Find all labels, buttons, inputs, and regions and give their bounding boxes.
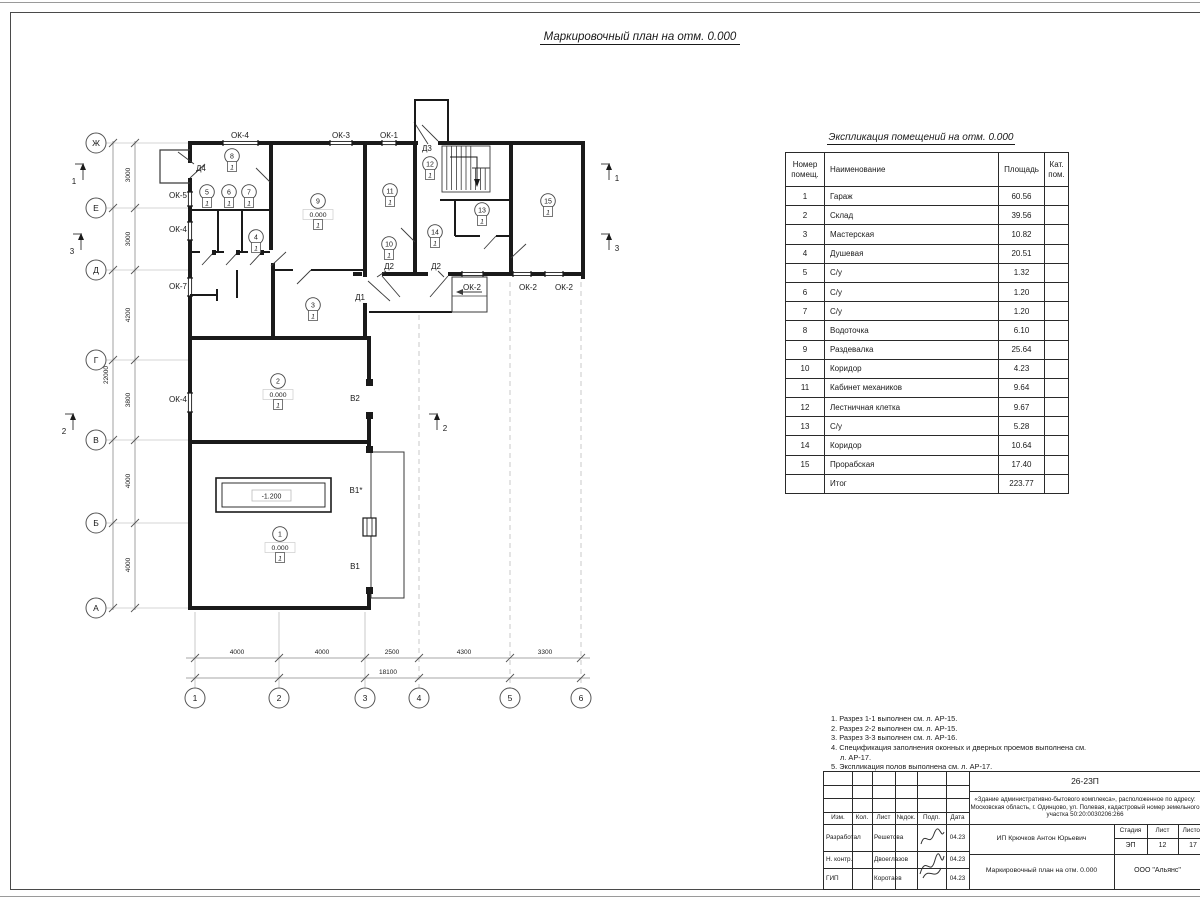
staff-role: ГИП	[824, 868, 874, 889]
opening-label: Д1	[355, 293, 365, 302]
plan-group: 3000300042003800400040002200040004000250…	[62, 100, 620, 708]
room-name: Кабинет механиков	[825, 378, 999, 397]
room-marker-13: 131	[475, 203, 490, 226]
axis-letter: Б	[93, 518, 99, 528]
room-floor-type: 1	[480, 219, 484, 226]
room-area: 1.20	[999, 302, 1045, 321]
room-number: 3	[786, 225, 825, 244]
room-floor-type: 1	[388, 200, 392, 207]
title-block: Изм.Кол.Лист№док.Подп.ДатаРазработалРеше…	[823, 771, 1200, 890]
room-marker-6: 61	[222, 185, 237, 208]
axis-number: 1	[193, 693, 198, 703]
opening-label: ОК-7	[169, 282, 188, 291]
room-marker-2: 20.0001	[263, 374, 293, 410]
table-row: 2Склад39.56	[786, 206, 1069, 225]
table-row: 15Прорабская17.40	[786, 455, 1069, 474]
room-number: 13	[786, 417, 825, 436]
room-number: 9	[786, 340, 825, 359]
room-marker-3: 31	[306, 298, 321, 321]
dim-left: 3800	[125, 392, 132, 407]
opening-label: ОК-1	[380, 131, 399, 140]
dim-bottom: 4300	[457, 649, 472, 656]
plan-geometry	[438, 271, 444, 277]
room-marker-14: 141	[428, 225, 443, 248]
room-category	[1045, 340, 1069, 359]
room-number: 7	[786, 302, 825, 321]
axis-letter: Г	[94, 355, 99, 365]
table-row: 12Лестничная клетка9.67	[786, 398, 1069, 417]
dim-bottom: 2500	[385, 649, 400, 656]
room-number: 8	[230, 154, 234, 161]
staff-name: Двоеглазов	[872, 851, 919, 868]
axis-number: 4	[417, 693, 422, 703]
axis-letter: Д	[93, 265, 99, 275]
stage-value: ЭП	[1114, 838, 1147, 854]
table-row: 8Водоточка6.10	[786, 321, 1069, 340]
titleblock-col-label: №док.	[895, 812, 917, 824]
room-area: 9.64	[999, 378, 1045, 397]
room-category	[1045, 187, 1069, 206]
room-floor-type: 1	[311, 314, 315, 321]
axis-letter: В	[93, 435, 99, 445]
section-marks: 132132	[62, 163, 620, 436]
plan-geometry	[430, 276, 448, 297]
entry-porch	[160, 150, 190, 183]
column-header: Площадь	[999, 153, 1045, 187]
table-row: 11Кабинет механиков9.64	[786, 378, 1069, 397]
room-level: 0.000	[271, 545, 288, 552]
plan-title: Маркировочный план на отм. 0.000	[430, 31, 850, 43]
room-number: 6	[227, 190, 231, 197]
room-marker-8: 81	[225, 149, 240, 172]
opening-label: В1*	[350, 486, 363, 495]
plan-geometry	[484, 236, 496, 249]
room-marker-4: 41	[249, 230, 264, 253]
table-row: Итог223.77	[786, 474, 1069, 493]
plan-geometry	[414, 122, 428, 144]
dim-left: 4000	[125, 473, 132, 488]
room-number: 13	[478, 208, 486, 215]
room-marker-7: 71	[242, 185, 257, 208]
dim-left-overall: 22000	[103, 366, 110, 384]
column-header: Номерпомещ.	[786, 153, 825, 187]
signature-marks	[917, 826, 946, 886]
room-area: 39.56	[999, 206, 1045, 225]
room-category	[1045, 436, 1069, 455]
table-row: 1Гараж60.56	[786, 187, 1069, 206]
pit-level-label: -1.200	[262, 494, 282, 501]
porches	[160, 100, 487, 598]
plan-geometry	[256, 168, 270, 182]
room-floor-type: 1	[254, 246, 258, 253]
note-line: 4. Спецификация заполнения оконных и две…	[831, 743, 1089, 762]
column-header: Наименование	[825, 153, 999, 187]
staff-role: Н. контр.	[824, 851, 874, 868]
opening-label: ОК-4	[231, 131, 250, 140]
titleblock-col-label: Изм.	[824, 812, 852, 824]
room-marker-12: 121	[423, 157, 438, 180]
room-number: 11	[386, 189, 393, 196]
room-area: 60.56	[999, 187, 1045, 206]
room-name: С/у	[825, 417, 999, 436]
room-name: Раздевалка	[825, 340, 999, 359]
ramp-arrow	[456, 289, 463, 295]
plan-geometry	[474, 179, 480, 187]
room-name: С/у	[825, 282, 999, 301]
room-area: 223.77	[999, 474, 1045, 493]
dim-left: 3000	[125, 231, 132, 246]
room-marker-15: 151	[541, 194, 556, 217]
gate-pier	[363, 518, 376, 536]
explication-table: Номерпомещ.НаименованиеПлощадьКат.пом. 1…	[785, 152, 1069, 494]
room-area: 20.51	[999, 244, 1045, 263]
room-floor-type: 1	[433, 241, 437, 248]
plan-geometry	[195, 0, 688, 612]
room-number: 8	[786, 321, 825, 340]
room-name: Прорабская	[825, 455, 999, 474]
sheets-label: Листов	[1178, 824, 1200, 838]
table-row: 5С/у1.32	[786, 263, 1069, 282]
plan-geometry	[279, 0, 688, 612]
room-area: 1.32	[999, 263, 1045, 282]
stall-post	[236, 250, 240, 255]
titleblock-col-label: Кол.	[852, 812, 872, 824]
room-category	[1045, 455, 1069, 474]
stall-post	[212, 250, 216, 255]
room-area: 10.82	[999, 225, 1045, 244]
room-category	[1045, 206, 1069, 225]
titleblock-col-label: Подп.	[917, 812, 946, 824]
sheets-value: 17	[1178, 838, 1200, 854]
room-floor-type: 1	[316, 223, 320, 230]
company-name: ООО "Альянс"	[1114, 854, 1200, 889]
room-number: 4	[786, 244, 825, 263]
staff-date: 04.23	[946, 851, 969, 868]
axis-number: 2	[277, 693, 282, 703]
opening-label: Д4	[196, 164, 206, 173]
room-number	[786, 474, 825, 493]
axis-number: 5	[508, 693, 513, 703]
room-number: 2	[786, 206, 825, 225]
room-name: Итог	[825, 474, 999, 493]
section-number: 1	[72, 177, 77, 186]
stair-vestibule	[415, 100, 448, 143]
dim-left: 4200	[125, 307, 132, 322]
room-number: 4	[254, 235, 258, 242]
room-name: Коридор	[825, 436, 999, 455]
table-row: 7С/у1.20	[786, 302, 1069, 321]
room-floor-type: 1	[205, 201, 209, 208]
room-floor-type: 1	[230, 165, 234, 172]
section-number: 3	[70, 247, 75, 256]
note-line: 2. Разрез 2-2 выполнен см. л. АР-15.	[831, 724, 1089, 734]
sheet-label: Лист	[1147, 824, 1178, 838]
room-area: 6.10	[999, 321, 1045, 340]
explication-header: Номерпомещ.НаименованиеПлощадьКат.пом.	[786, 153, 1069, 187]
table-row: 3Мастерская10.82	[786, 225, 1069, 244]
room-number: 6	[786, 282, 825, 301]
dim-bottom: 3300	[538, 649, 553, 656]
table-row: 13С/у5.28	[786, 417, 1069, 436]
room-number: 9	[316, 199, 320, 206]
room-area: 17.40	[999, 455, 1045, 474]
room-number: 5	[205, 190, 209, 197]
client-name: ИП Крючков Антон Юрьевич	[969, 824, 1114, 854]
staff-name: Решетова	[872, 824, 919, 851]
staff-role: Разработал	[824, 824, 874, 851]
drawing-sheet: { "sheet": { "plan_title": "Маркировочны…	[0, 0, 1200, 900]
section-number: 2	[443, 424, 448, 433]
staff-date: 04.23	[946, 868, 969, 889]
room-area: 4.23	[999, 359, 1045, 378]
opening-label: ОК-4	[169, 395, 188, 404]
plan-geometry	[511, 244, 526, 258]
axis-letter: Ж	[92, 138, 100, 148]
room-name: Лестничная клетка	[825, 398, 999, 417]
room-level: 0.000	[309, 212, 326, 219]
dim-left: 4000	[125, 557, 132, 572]
room-category	[1045, 417, 1069, 436]
axis-number: 6	[579, 693, 584, 703]
room-category	[1045, 474, 1069, 493]
section-number: 1	[615, 174, 620, 183]
room-number: 10	[786, 359, 825, 378]
room-marker-10: 101	[382, 237, 397, 260]
room-number: 10	[385, 242, 393, 249]
opening-label: Д3	[422, 144, 432, 153]
table-row: 10Коридор4.23	[786, 359, 1069, 378]
gate-jamb	[366, 446, 373, 453]
room-floor-type: 1	[546, 210, 550, 217]
room-category	[1045, 263, 1069, 282]
room-area: 1.20	[999, 282, 1045, 301]
dimension-lines: 3000300042003800400040002200040004000250…	[103, 139, 590, 682]
sheet-value: 12	[1147, 838, 1178, 854]
staff-name: Коротаев	[872, 868, 919, 889]
plan-geometry	[365, 0, 688, 612]
gate-jamb	[366, 379, 373, 386]
column-header: Кат.пом.	[1045, 153, 1069, 187]
note-line: 1. Разрез 1-1 выполнен см. л. АР-15.	[831, 714, 1089, 724]
opening-label: ОК-2	[519, 283, 538, 292]
room-marker-1: 10.0001	[265, 527, 295, 563]
opening-label: Д2	[431, 262, 441, 271]
room-category	[1045, 302, 1069, 321]
room-number: 12	[786, 398, 825, 417]
plan-geometry	[382, 276, 400, 297]
room-floor-type: 1	[387, 253, 391, 260]
room-floor-type: 1	[227, 201, 231, 208]
dim-bottom: 4000	[315, 649, 330, 656]
room-category	[1045, 378, 1069, 397]
garage-pit: -1.200	[216, 478, 331, 512]
room-name: Душевая	[825, 244, 999, 263]
walls	[188, 141, 585, 610]
room-category	[1045, 359, 1069, 378]
opening-label: ОК-4	[169, 225, 188, 234]
room-marker-9: 90.0001	[303, 194, 333, 230]
plan-geometry	[401, 228, 415, 242]
room-number: 14	[786, 436, 825, 455]
opening-label: ОК-5	[169, 191, 188, 200]
explication-title: Экспликация помещений на отм. 0.000	[785, 132, 1057, 143]
titleblock-line	[824, 798, 969, 799]
table-row: 9Раздевалка25.64	[786, 340, 1069, 359]
room-number: 1	[278, 532, 282, 539]
room-area: 10.64	[999, 436, 1045, 455]
room-name: Водоточка	[825, 321, 999, 340]
room-floor-type: 1	[428, 173, 432, 180]
room-number: 7	[247, 190, 251, 197]
table-row: 6С/у1.20	[786, 282, 1069, 301]
room-level: 0.000	[269, 392, 286, 399]
axis-letter: А	[93, 603, 99, 613]
room-marker-11: 111	[383, 184, 398, 207]
room-name: Гараж	[825, 187, 999, 206]
room-number: 12	[426, 162, 434, 169]
dim-bottom: 4000	[230, 649, 245, 656]
room-number: 1	[786, 187, 825, 206]
document-title: Маркировочный план на отм. 0.000	[969, 854, 1114, 889]
room-name: Мастерская	[825, 225, 999, 244]
table-row: 14Коридор10.64	[786, 436, 1069, 455]
section-number: 2	[62, 427, 67, 436]
room-floor-type: 1	[278, 556, 282, 563]
notes-list: 1. Разрез 1-1 выполнен см. л. АР-15.2. Р…	[831, 714, 1089, 772]
axis-letter: Е	[93, 203, 99, 213]
opening-label: ОК-2	[463, 283, 482, 292]
opening-label: ОК-3	[332, 131, 351, 140]
room-floor-type: 1	[276, 403, 280, 410]
gate-jamb	[366, 412, 373, 419]
room-name: С/у	[825, 263, 999, 282]
room-category	[1045, 225, 1069, 244]
room-area: 5.28	[999, 417, 1045, 436]
opening-label: В2	[350, 394, 360, 403]
project-description: «Здание административно-бытового комплек…	[969, 792, 1200, 823]
room-area: 9.67	[999, 398, 1045, 417]
stair-arrow	[450, 157, 477, 180]
room-name: Коридор	[825, 359, 999, 378]
opening-label: Д2	[384, 262, 394, 271]
plan-geometry	[368, 281, 390, 301]
stairs	[442, 146, 490, 192]
room-category	[1045, 321, 1069, 340]
stage-label: Стадия	[1114, 824, 1147, 838]
opening-label: В1	[350, 562, 360, 571]
room-number: 14	[431, 230, 439, 237]
dim-left: 3000	[125, 167, 132, 182]
room-floor-type: 1	[247, 201, 251, 208]
room-category	[1045, 398, 1069, 417]
room-name: С/у	[825, 302, 999, 321]
plan-geometry	[297, 270, 311, 284]
room-name: Склад	[825, 206, 999, 225]
room-category	[1045, 244, 1069, 263]
titleblock-col-label: Лист	[872, 812, 895, 824]
room-number: 2	[276, 379, 280, 386]
staff-date: 04.23	[946, 824, 969, 851]
room-number: 11	[786, 378, 825, 397]
room-number: 5	[786, 263, 825, 282]
explication-body: 1Гараж60.562Склад39.563Мастерская10.824Д…	[786, 187, 1069, 494]
project-code: 26-23П	[969, 772, 1200, 791]
gate-jamb	[366, 587, 373, 594]
section-number: 3	[615, 244, 620, 253]
table-row: 4Душевая20.51	[786, 244, 1069, 263]
opening-label: ОК-2	[555, 283, 574, 292]
note-line: 3. Разрез 3-3 выполнен см. л. АР-16.	[831, 733, 1089, 743]
room-area: 25.64	[999, 340, 1045, 359]
titleblock-col-label: Дата	[946, 812, 969, 824]
dim-bottom-overall: 18100	[379, 669, 397, 676]
room-category	[1045, 282, 1069, 301]
room-number: 3	[311, 303, 315, 310]
titleblock-line	[824, 785, 969, 786]
axis-bubbles: ЖЕДГВБА123456	[86, 133, 591, 708]
room-number: 15	[786, 455, 825, 474]
room-number: 15	[544, 199, 552, 206]
axis-number: 3	[363, 693, 368, 703]
plan-geometry	[271, 252, 286, 266]
room-marker-5: 51	[200, 185, 215, 208]
